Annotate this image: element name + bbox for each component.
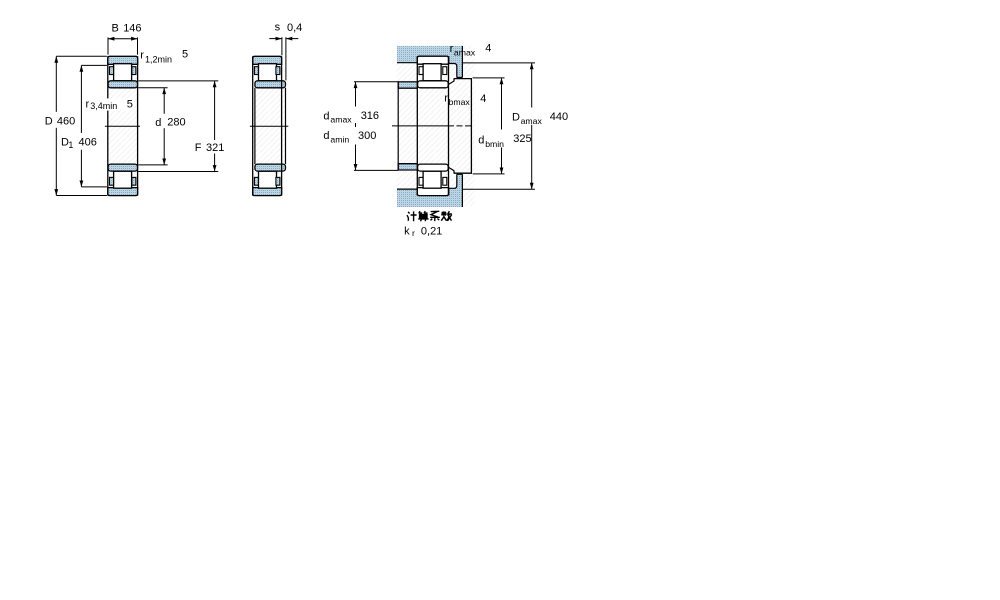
svg-text:k: k (404, 225, 410, 237)
svg-text:bmin: bmin (485, 139, 504, 149)
svg-text:316: 316 (361, 110, 379, 122)
svg-text:1,2min: 1,2min (145, 54, 172, 64)
svg-text:r: r (86, 98, 90, 110)
svg-text:4: 4 (485, 42, 491, 54)
svg-text:D: D (512, 112, 520, 124)
svg-text:s: s (275, 22, 281, 34)
svg-text:bmax: bmax (449, 97, 471, 107)
svg-text:r: r (140, 50, 144, 62)
svg-text:5: 5 (127, 99, 133, 111)
svg-text:300: 300 (358, 130, 376, 142)
svg-text:3,4min: 3,4min (90, 101, 117, 111)
svg-text:146: 146 (123, 23, 141, 35)
svg-text:D: D (45, 116, 53, 128)
svg-text:4: 4 (480, 93, 486, 105)
svg-text:325: 325 (513, 133, 531, 145)
svg-text:1: 1 (68, 140, 73, 150)
svg-text:r: r (412, 228, 415, 238)
svg-text:d: d (155, 117, 161, 129)
svg-text:amax: amax (330, 114, 352, 124)
svg-text:280: 280 (167, 117, 185, 129)
svg-text:406: 406 (79, 136, 97, 148)
svg-text:321: 321 (206, 142, 224, 154)
svg-text:440: 440 (550, 111, 568, 123)
svg-text:0,4: 0,4 (287, 22, 302, 34)
svg-text:amax: amax (521, 116, 543, 126)
svg-text:amin: amin (330, 134, 349, 144)
svg-text:B: B (112, 23, 119, 35)
svg-text:d: d (478, 134, 484, 146)
svg-text:460: 460 (57, 116, 75, 128)
svg-text:0,21: 0,21 (421, 225, 442, 237)
svg-text:5: 5 (182, 49, 188, 61)
svg-text:F: F (195, 142, 202, 154)
svg-text:d: d (323, 130, 329, 142)
svg-text:amax: amax (454, 48, 476, 58)
svg-text:d: d (323, 110, 329, 122)
